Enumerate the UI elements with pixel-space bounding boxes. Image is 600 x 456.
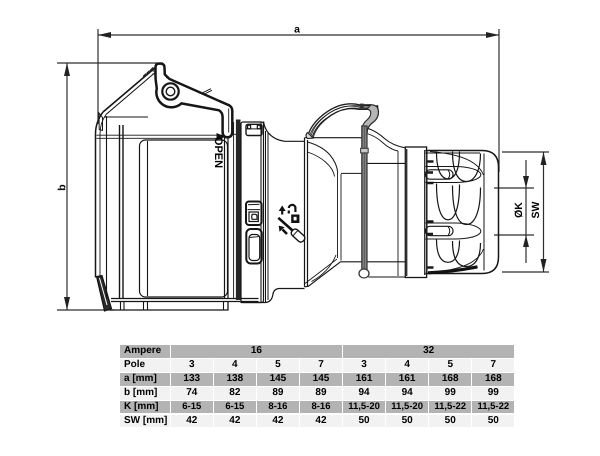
svg-text:ØK: ØK xyxy=(513,202,525,218)
svg-text:OPEN: OPEN xyxy=(212,137,224,168)
svg-text:a: a xyxy=(294,23,300,35)
svg-text:b: b xyxy=(56,184,68,190)
svg-text:SW: SW xyxy=(530,201,542,218)
